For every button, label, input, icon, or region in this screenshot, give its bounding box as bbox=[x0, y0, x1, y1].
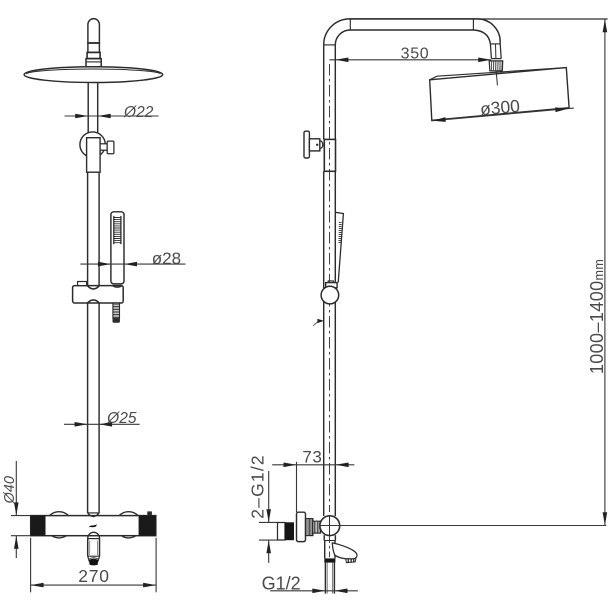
svg-text:270: 270 bbox=[78, 566, 110, 586]
svg-text:ø300: ø300 bbox=[479, 96, 521, 119]
svg-text:ø28: ø28 bbox=[152, 249, 181, 268]
svg-text:Ø25: Ø25 bbox=[106, 410, 137, 427]
svg-text:G1/2: G1/2 bbox=[262, 573, 301, 593]
svg-text:350: 350 bbox=[401, 46, 430, 63]
svg-text:73: 73 bbox=[302, 448, 322, 467]
svg-text:Ø22: Ø22 bbox=[123, 104, 154, 121]
svg-text:1000–1400mm: 1000–1400mm bbox=[587, 259, 607, 374]
svg-text:2–G1/2: 2–G1/2 bbox=[247, 454, 267, 519]
svg-text:Ø40: Ø40 bbox=[2, 476, 18, 504]
